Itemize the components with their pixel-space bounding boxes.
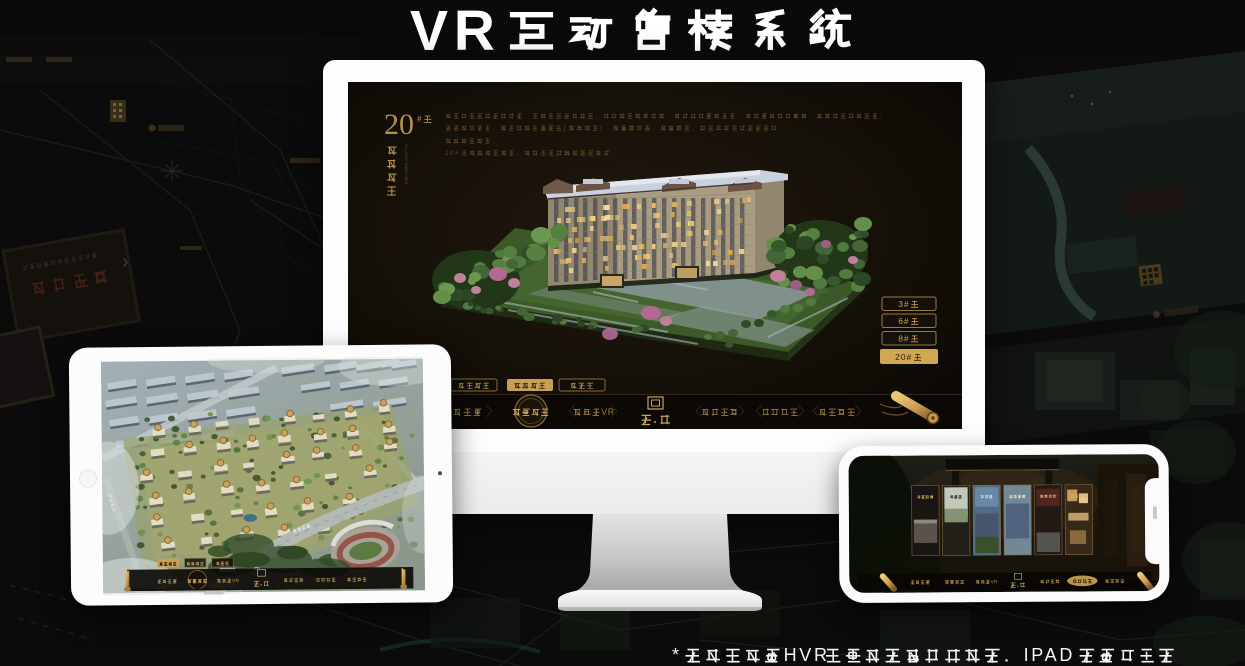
svg-text:3#: 3# [898, 299, 909, 309]
svg-text:(: ( [564, 125, 568, 132]
svg-text:›: › [122, 251, 129, 273]
svg-text:VR: VR [991, 579, 999, 585]
svg-text:6#: 6# [898, 316, 909, 326]
svg-text:HVR: HVR [784, 645, 830, 665]
svg-text:20: 20 [384, 108, 414, 141]
svg-text:20#: 20# [895, 352, 912, 362]
svg-text:8#: 8# [898, 334, 909, 344]
svg-text:VR: VR [410, 0, 501, 60]
svg-text:IPAD: IPAD [1024, 645, 1075, 665]
svg-text:*: * [672, 645, 682, 665]
svg-text:#: # [417, 114, 422, 124]
svg-text:20#: 20# [445, 150, 460, 157]
svg-text:): ) [600, 125, 604, 132]
svg-text:VR: VR [232, 578, 240, 584]
svg-text:VILLA THE SAND TABLE: VILLA THE SAND TABLE [404, 144, 408, 185]
